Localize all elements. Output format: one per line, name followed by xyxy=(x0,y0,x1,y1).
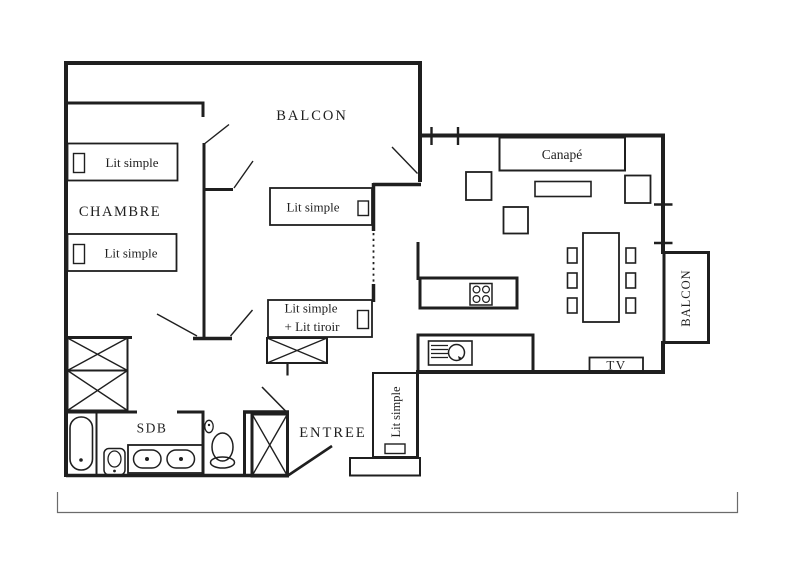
scale-bar xyxy=(58,492,738,513)
armchair-right xyxy=(625,176,651,204)
label-sdb: SDB xyxy=(137,421,168,436)
armchair-lower xyxy=(504,207,529,234)
door-chambre-left-leaf xyxy=(157,314,197,336)
entry-step xyxy=(350,458,420,476)
door-entry-lower xyxy=(288,446,332,476)
pillow-icon xyxy=(358,311,369,329)
chair xyxy=(568,273,578,288)
window-ticks xyxy=(432,127,673,243)
cistern-icon xyxy=(205,420,213,432)
pillow-icon xyxy=(74,245,85,264)
label-bed4-line2: + Lit tiroir xyxy=(285,319,341,334)
pillow-icon xyxy=(385,444,405,454)
chair xyxy=(626,248,636,263)
wc xyxy=(205,420,235,468)
bathtub-drain-icon xyxy=(79,458,83,462)
dining-set xyxy=(568,233,636,322)
bidet-drain-icon xyxy=(113,470,116,473)
wardrobe xyxy=(68,338,128,411)
label-tv: TV xyxy=(606,358,626,373)
kitchen-counter-stove xyxy=(420,278,517,308)
burner-icon xyxy=(483,286,490,293)
wardrobe-cross-icon xyxy=(68,371,128,411)
label-bed4-line1: Lit simple xyxy=(284,301,337,316)
chair xyxy=(626,298,636,313)
label-canape: Canapé xyxy=(542,147,582,162)
coffee-table xyxy=(535,182,591,197)
label-bed2: Lit simple xyxy=(104,246,157,261)
toilet-base-icon xyxy=(211,457,235,468)
armchair-left xyxy=(466,172,492,200)
door-chambre-balcony xyxy=(203,125,229,146)
label-chambre: CHAMBRE xyxy=(79,204,161,220)
chair xyxy=(568,298,578,313)
entry-closet-cross-icon xyxy=(252,414,288,476)
label-bed3: Lit simple xyxy=(286,200,339,215)
chair xyxy=(626,273,636,288)
drawer-bed-cross-icon xyxy=(267,338,327,363)
floor-plan: BALCON CHAMBRE Lit simple Lit simple Lit… xyxy=(0,0,800,566)
label-balcon-top: BALCON xyxy=(276,108,348,124)
label-entree: ENTREE xyxy=(299,425,367,441)
chair xyxy=(568,248,578,263)
sink-counter xyxy=(128,445,203,473)
dining-table xyxy=(583,233,619,322)
door-entry-upper xyxy=(262,387,288,413)
floor-plan-drawing: BALCON CHAMBRE Lit simple Lit simple Lit… xyxy=(0,0,800,566)
basin-drain-icon xyxy=(145,457,149,461)
label-balcon-right: BALCON xyxy=(679,269,693,326)
label-bed1: Lit simple xyxy=(105,155,158,170)
burner-icon xyxy=(483,296,490,303)
outer-walls xyxy=(64,61,665,477)
door-hall-balcony xyxy=(234,161,253,188)
kitchen xyxy=(418,278,533,372)
pillow-icon xyxy=(74,154,85,173)
wall-chambre-balcony xyxy=(66,102,203,118)
entry-closet xyxy=(252,414,288,476)
pillow-icon xyxy=(358,201,369,216)
wardrobe-cross-icon xyxy=(68,338,128,371)
basin-drain-icon xyxy=(179,457,183,461)
sink-bowl-icon xyxy=(449,345,465,361)
burner-icon xyxy=(473,296,480,303)
door-living-balcony xyxy=(392,147,418,174)
bathtub-icon xyxy=(70,417,93,470)
door-chambre-right-leaf xyxy=(231,310,253,336)
label-bed5: Lit simple xyxy=(389,386,403,437)
cistern-dot-icon xyxy=(208,424,210,426)
drainboard-icon xyxy=(431,346,448,358)
bidet-bowl-icon xyxy=(108,451,121,467)
burner-icon xyxy=(473,286,480,293)
